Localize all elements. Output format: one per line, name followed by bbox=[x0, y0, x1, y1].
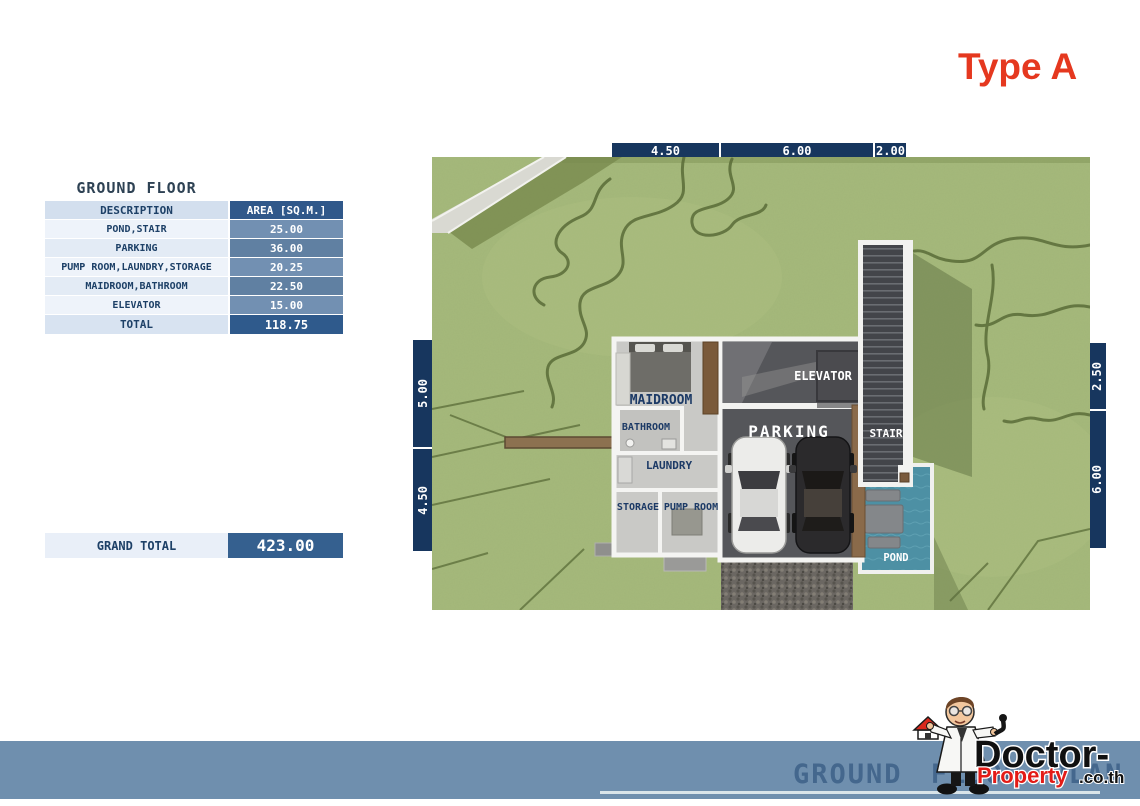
grand-total-row: GRAND TOTAL 423.00 bbox=[45, 533, 343, 558]
grand-total-label: GRAND TOTAL bbox=[45, 533, 228, 558]
stair-structure bbox=[858, 240, 913, 487]
dimension-top-3: 2.00 bbox=[875, 143, 906, 158]
stethoscope-icon bbox=[995, 720, 1004, 734]
bathroom-label: BATHROOM bbox=[622, 422, 670, 433]
col-header-description: DESCRIPTION bbox=[45, 201, 228, 220]
row-area: 20.25 bbox=[228, 258, 343, 277]
white-car bbox=[725, 437, 793, 553]
washer bbox=[618, 457, 632, 483]
grand-total-value: 423.00 bbox=[228, 533, 343, 558]
dimension-right-2: 6.00 bbox=[1088, 411, 1106, 548]
table-header-row: DESCRIPTION AREA [SQ.M.] bbox=[45, 201, 343, 220]
dimension-left-1: 5.00 bbox=[413, 340, 432, 447]
row-area: 15.00 bbox=[228, 296, 343, 315]
doctor-with-house-icon: Doctor- Property .co.th bbox=[903, 690, 1140, 802]
site-plan-image: MAIDROOM BATHROOM LAUNDRY STORAGE PUMP R… bbox=[432, 157, 1090, 610]
table-row: PARKING 36.00 bbox=[45, 239, 343, 258]
site-plan-svg: MAIDROOM BATHROOM LAUNDRY STORAGE PUMP R… bbox=[432, 157, 1090, 610]
dimension-left-2: 4.50 bbox=[413, 449, 432, 551]
table-title: GROUND FLOOR bbox=[45, 179, 228, 197]
row-description: PARKING bbox=[45, 239, 228, 258]
row-area: 25.00 bbox=[228, 220, 343, 239]
dimension-top-2: 6.00 bbox=[721, 143, 873, 158]
pond-label: POND bbox=[883, 552, 908, 564]
laundry-label: LAUNDRY bbox=[646, 459, 693, 472]
storage-label: STORAGE bbox=[617, 502, 659, 513]
sofa bbox=[616, 353, 630, 405]
row-description: PUMP ROOM,LAUNDRY,STORAGE bbox=[45, 258, 228, 277]
plan-type-title: Type A bbox=[958, 46, 1077, 88]
dimension-right-1: 2.50 bbox=[1088, 343, 1106, 409]
row-description: POND,STAIR bbox=[45, 220, 228, 239]
row-area: 36.00 bbox=[228, 239, 343, 258]
brand-line2: Property bbox=[977, 763, 1068, 788]
dimension-top-1: 4.50 bbox=[612, 143, 719, 158]
bed bbox=[629, 352, 691, 392]
table-row: POND,STAIR 25.00 bbox=[45, 220, 343, 239]
brand-suffix: .co.th bbox=[1079, 768, 1124, 787]
row-description: MAIDROOM,BATHROOM bbox=[45, 277, 228, 296]
table-row: PUMP ROOM,LAUNDRY,STORAGE 20.25 bbox=[45, 258, 343, 277]
total-label: TOTAL bbox=[45, 315, 228, 335]
pump-room-label: PUMP ROOM bbox=[664, 502, 718, 513]
doctor-property-logo: Doctor- Property .co.th bbox=[903, 690, 1140, 802]
closet bbox=[703, 342, 718, 414]
floor-plan-page: Type A GROUND FLOOR DESCRIPTION AREA [SQ… bbox=[0, 0, 1140, 806]
col-header-area: AREA [SQ.M.] bbox=[228, 201, 343, 220]
row-description: ELEVATOR bbox=[45, 296, 228, 315]
maidroom-label: MAIDROOM bbox=[630, 393, 693, 408]
table-total-row: TOTAL 118.75 bbox=[45, 315, 343, 335]
total-value: 118.75 bbox=[228, 315, 343, 335]
row-area: 22.50 bbox=[228, 277, 343, 296]
maid-block bbox=[614, 339, 720, 555]
parking-label: PARKING bbox=[748, 422, 829, 441]
stair-label: STAIR bbox=[869, 427, 902, 440]
elevator-label: ELEVATOR bbox=[794, 369, 853, 383]
black-car bbox=[789, 437, 857, 553]
table-row: MAIDROOM,BATHROOM 22.50 bbox=[45, 277, 343, 296]
garden-wall bbox=[505, 437, 615, 448]
table-row: ELEVATOR 15.00 bbox=[45, 296, 343, 315]
